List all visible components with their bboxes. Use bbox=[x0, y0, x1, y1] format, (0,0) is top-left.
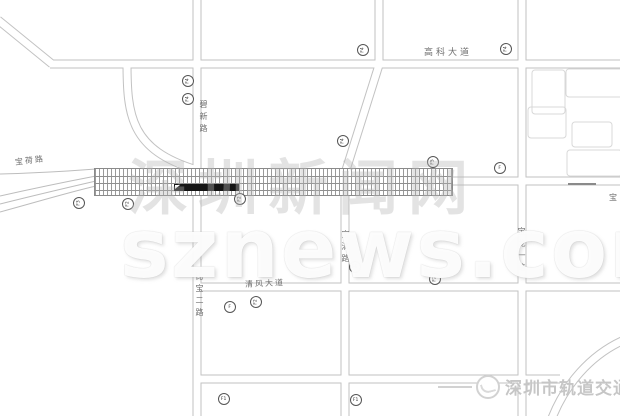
exit-marker: F4 bbox=[182, 93, 194, 105]
rail-logo-text: 深圳市轨道交通 bbox=[505, 374, 620, 399]
road-label: 宝 bbox=[609, 194, 617, 202]
exit-marker: F1 bbox=[350, 394, 362, 406]
building-outlines bbox=[528, 69, 620, 176]
exit-marker: F4 bbox=[357, 44, 369, 56]
road-label: 碧新路 bbox=[199, 100, 207, 136]
logo-dash bbox=[438, 386, 472, 388]
exit-marker: F bbox=[494, 162, 506, 174]
exit-marker: F bbox=[224, 301, 236, 313]
exit-marker: F1 bbox=[218, 393, 230, 405]
exit-marker: F2 bbox=[250, 296, 262, 308]
road-label: 高科大道 bbox=[424, 49, 472, 58]
exit-marker: F4 bbox=[500, 43, 512, 55]
rail-logo-icon bbox=[476, 375, 500, 399]
station-plan-map: F3F2F2F4F4F4F4F4F5FF6F2FF2F1F1 宝荷路碧新路高科大… bbox=[0, 0, 620, 416]
exit-marker: F3 bbox=[73, 197, 85, 209]
watermark-sznews-domain: sznews.com bbox=[120, 202, 620, 297]
rail-transit-logo: 深圳市轨道交通 bbox=[438, 374, 620, 399]
exit-marker: F4 bbox=[182, 75, 194, 87]
